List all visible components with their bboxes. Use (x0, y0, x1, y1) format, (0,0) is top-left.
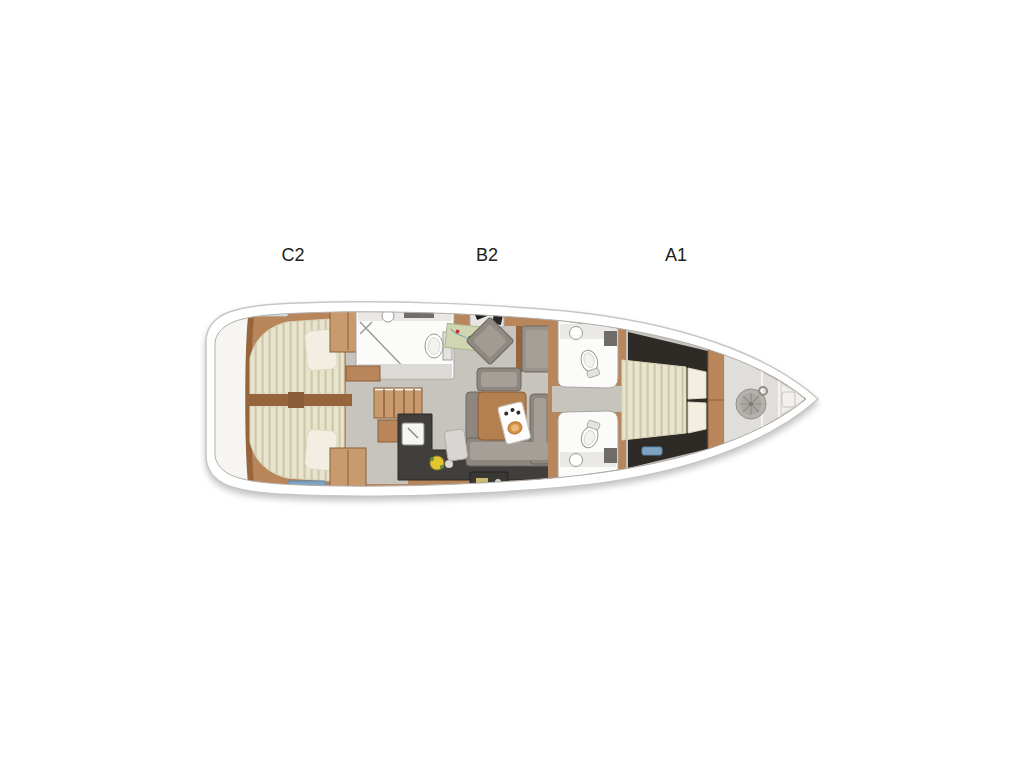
bed-divider-post (288, 392, 304, 408)
ottoman-cushion (481, 372, 517, 387)
double-bed-icon-forward (622, 360, 686, 440)
cabin-labels: C2 B2 A1 (281, 245, 687, 265)
washbasin-icon (570, 327, 583, 340)
pillow-icon (688, 368, 706, 399)
bow-step-icon (782, 392, 795, 407)
forward-head-top (558, 320, 618, 388)
deck-hatch-icon-forward (642, 447, 662, 455)
flower-vase-icon (430, 456, 444, 470)
screenshot-canvas: C2 B2 A1 (0, 0, 1024, 768)
label-salon: B2 (476, 245, 498, 265)
label-aft-cabin: C2 (281, 245, 304, 265)
label-forward-cabin: A1 (665, 245, 687, 265)
pillow-icon (688, 402, 706, 433)
sofa-pillow-icon (444, 429, 468, 461)
forward-head-bottom (558, 411, 618, 479)
yacht-floor-plan: C2 B2 A1 (0, 0, 1024, 768)
head-locker (604, 331, 617, 346)
washbasin-icon (570, 454, 583, 467)
head-locker (604, 448, 617, 463)
interior (204, 296, 814, 502)
